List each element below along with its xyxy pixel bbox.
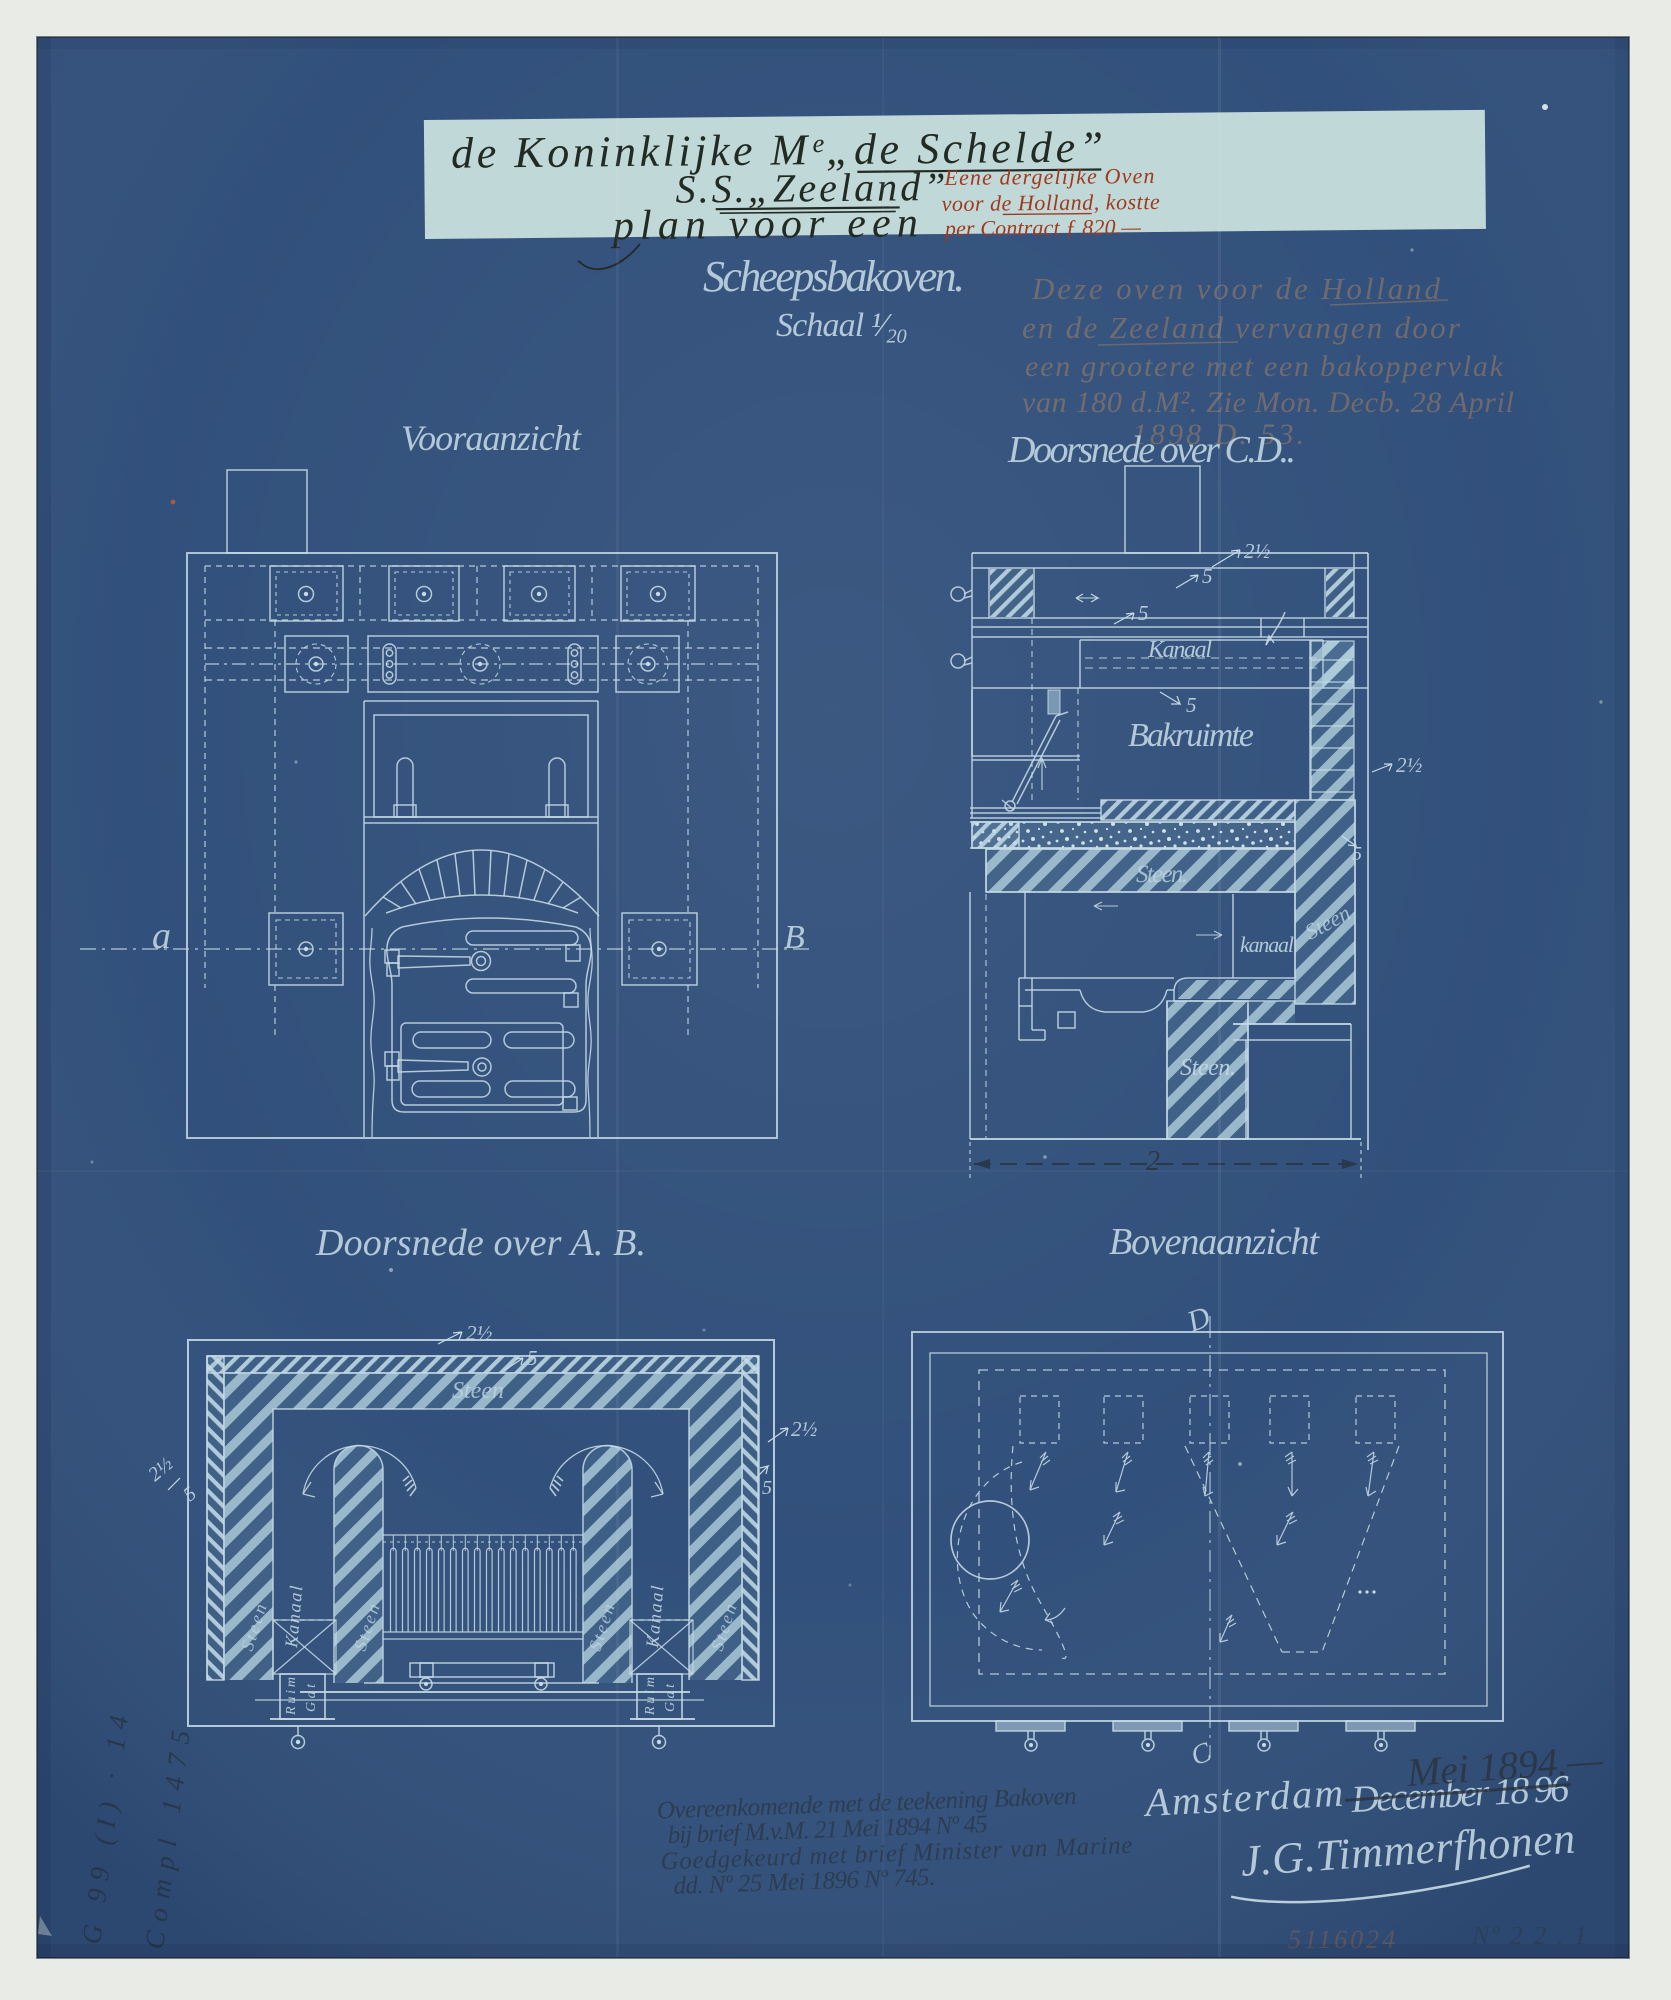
svg-text:Vooraanzicht: Vooraanzicht	[401, 418, 582, 458]
svg-text:per Contract ƒ 820.—: per Contract ƒ 820.—	[943, 214, 1142, 241]
svg-text:Scheepsbakoven.: Scheepsbakoven.	[703, 252, 965, 301]
svg-text:Kanaal: Kanaal	[1147, 637, 1212, 663]
svg-text:Steen: Steen	[452, 1378, 504, 1404]
svg-text:5: 5	[527, 1346, 538, 1370]
svg-text:Eene dergelijke Oven: Eene dergelijke Oven	[943, 163, 1154, 190]
svg-text:2½: 2½	[466, 1321, 493, 1345]
svg-text:B: B	[784, 919, 805, 956]
svg-text:Gat: Gat	[304, 1683, 319, 1712]
svg-text:a: a	[152, 915, 171, 957]
svg-text:Doorsnede over C.D..: Doorsnede over C.D..	[1007, 429, 1296, 471]
svg-text:5: 5	[762, 1477, 772, 1499]
svg-text:2½: 2½	[1396, 753, 1423, 777]
svg-text:Bakruimte: Bakruimte	[1128, 717, 1254, 754]
svg-text:2½: 2½	[1244, 539, 1271, 563]
svg-text:en de Zeeland vervangen door: en de Zeeland vervangen door	[1022, 310, 1461, 345]
svg-text:5: 5	[1186, 693, 1197, 717]
svg-text:van 180 d.M². Zie Mon. Decb. 2: van 180 d.M². Zie Mon. Decb. 28 April	[1022, 386, 1514, 419]
svg-text:Steen.: Steen.	[1136, 861, 1188, 888]
svg-text:Doorsnede over A. B.: Doorsnede over A. B.	[315, 1222, 646, 1264]
svg-text:kanaal: kanaal	[1240, 932, 1294, 957]
svg-text:voor de Holland, kostte: voor de Holland, kostte	[942, 189, 1160, 216]
svg-text:2½: 2½	[791, 1417, 818, 1441]
svg-text:Deze oven voor de Holland: Deze oven voor de Holland	[1031, 271, 1441, 306]
svg-text:2: 2	[1146, 1146, 1160, 1177]
svg-text:Schaal ¹⁄₂₀: Schaal ¹⁄₂₀	[776, 307, 908, 344]
svg-text:5: 5	[1138, 601, 1149, 625]
svg-text:Bovenaanzicht: Bovenaanzicht	[1109, 1221, 1320, 1263]
svg-text:Steen.: Steen.	[1180, 1055, 1236, 1081]
svg-text:Gat: Gat	[663, 1683, 678, 1712]
svg-text:5: 5	[1352, 843, 1362, 865]
svg-text:5: 5	[1202, 564, 1213, 588]
